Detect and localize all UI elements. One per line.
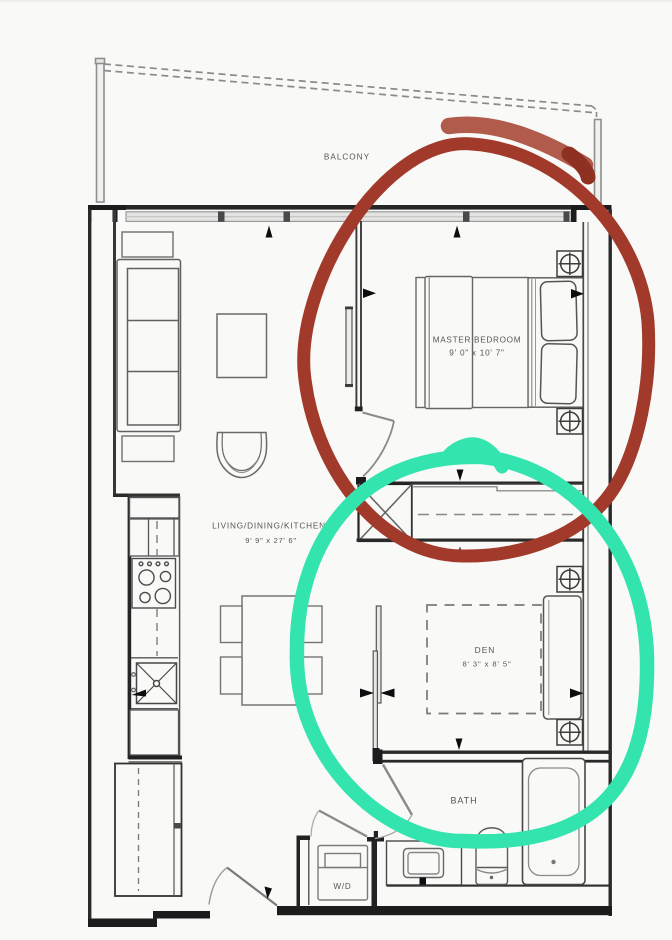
svg-text:9' 0" x 10' 7": 9' 0" x 10' 7": [449, 349, 504, 358]
svg-text:BATH: BATH: [451, 796, 478, 806]
svg-text:8' 3" x 8' 5": 8' 3" x 8' 5": [462, 660, 511, 669]
svg-text:BALCONY: BALCONY: [324, 153, 370, 162]
svg-text:MASTER BEDROOM: MASTER BEDROOM: [433, 336, 522, 345]
svg-text:9' 9" x 27' 6": 9' 9" x 27' 6": [245, 536, 296, 545]
svg-text:LIVING/DINING/KITCHEN: LIVING/DINING/KITCHEN: [212, 522, 326, 531]
svg-text:W/D: W/D: [333, 882, 351, 891]
svg-text:DEN: DEN: [475, 645, 496, 655]
